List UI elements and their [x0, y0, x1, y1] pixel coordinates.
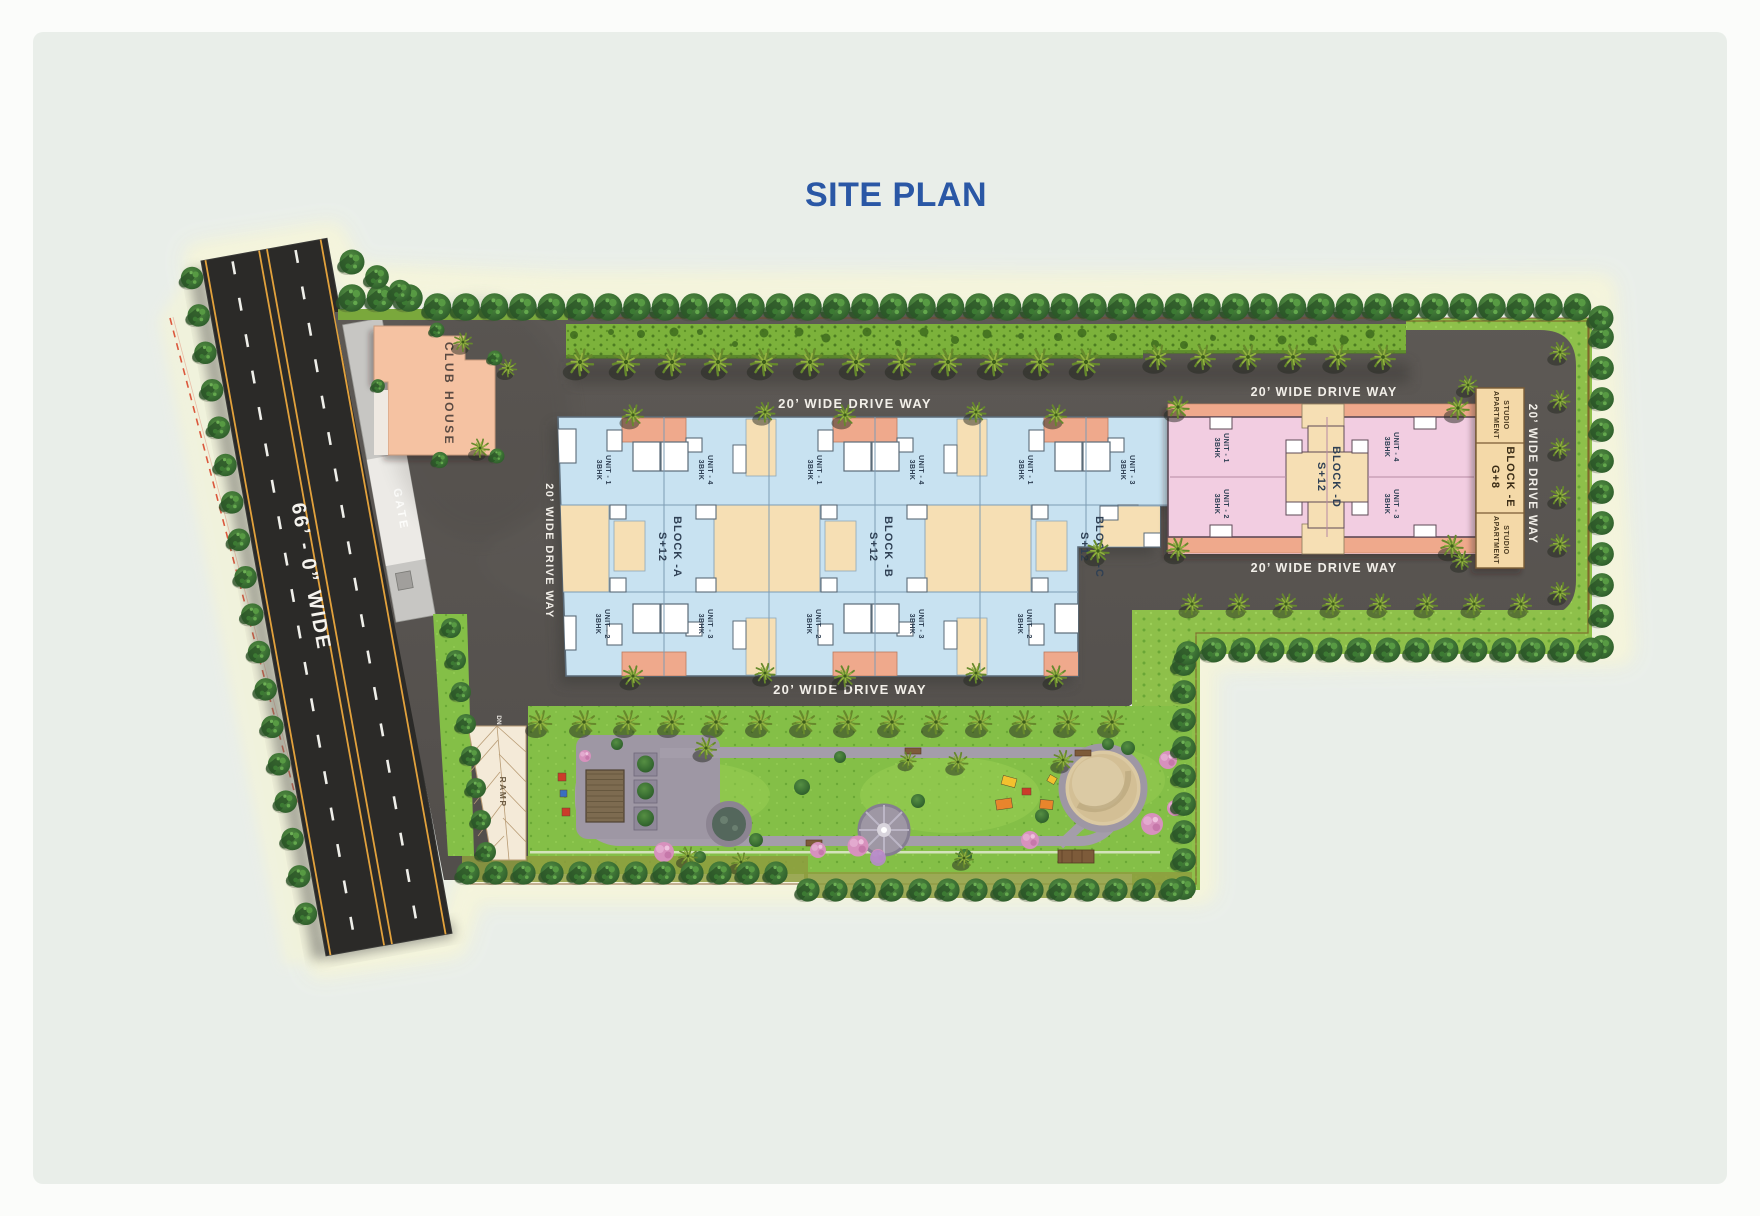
svg-text:APARTMENT: APARTMENT — [1492, 516, 1499, 564]
svg-text:UNIT - 4: UNIT - 4 — [706, 455, 713, 485]
svg-text:3BHK: 3BHK — [908, 614, 915, 635]
svg-text:3BHK: 3BHK — [1213, 438, 1220, 459]
svg-text:BLOCK -B: BLOCK -B — [882, 516, 894, 578]
svg-text:BLOCK -D: BLOCK -D — [1330, 446, 1342, 508]
svg-text:3BHK: 3BHK — [908, 460, 915, 481]
svg-text:SITE PLAN: SITE PLAN — [805, 176, 987, 214]
svg-text:3BHK: 3BHK — [594, 614, 601, 635]
svg-text:STUDIO: STUDIO — [1502, 525, 1509, 555]
svg-text:RAMP: RAMP — [498, 776, 508, 807]
svg-text:20’ WIDE DRIVE WAY: 20’ WIDE DRIVE WAY — [1251, 561, 1398, 575]
svg-text:CLUB HOUSE: CLUB HOUSE — [442, 342, 456, 446]
svg-text:20’ WIDE DRIVE WAY: 20’ WIDE DRIVE WAY — [1526, 404, 1538, 544]
svg-text:UNIT - 4: UNIT - 4 — [917, 455, 924, 485]
svg-text:UNIT - 1: UNIT - 1 — [604, 455, 611, 485]
svg-text:20’ WIDE DRIVE WAY: 20’ WIDE DRIVE WAY — [543, 483, 555, 618]
svg-text:DN: DN — [495, 715, 502, 725]
svg-text:UNIT - 2: UNIT - 2 — [1025, 609, 1032, 639]
svg-text:3BHK: 3BHK — [1383, 437, 1390, 458]
svg-text:UNIT - 2: UNIT - 2 — [603, 609, 610, 639]
svg-text:G+8: G+8 — [1489, 465, 1501, 489]
svg-text:STUDIO: STUDIO — [1502, 400, 1509, 430]
svg-text:APARTMENT: APARTMENT — [1492, 391, 1499, 439]
svg-text:UNIT - 3: UNIT - 3 — [1128, 455, 1135, 485]
svg-text:UNIT - 1: UNIT - 1 — [1026, 455, 1033, 485]
svg-text:UNIT - 2: UNIT - 2 — [1222, 489, 1229, 519]
svg-text:3BHK: 3BHK — [1119, 460, 1126, 481]
svg-text:UNIT - 3: UNIT - 3 — [1392, 489, 1399, 519]
svg-text:UNIT - 3: UNIT - 3 — [917, 609, 924, 639]
svg-text:UNIT - 3: UNIT - 3 — [706, 609, 713, 639]
svg-text:UNIT - 1: UNIT - 1 — [1222, 433, 1229, 463]
svg-text:20’ WIDE DRIVE WAY: 20’ WIDE DRIVE WAY — [1251, 385, 1398, 399]
svg-text:BLOCK -A: BLOCK -A — [671, 516, 683, 578]
svg-text:UNIT - 2: UNIT - 2 — [814, 609, 821, 639]
svg-text:20’ WIDE DRIVE WAY: 20’ WIDE DRIVE WAY — [778, 396, 932, 411]
svg-text:3BHK: 3BHK — [697, 614, 704, 635]
svg-text:UNIT - 1: UNIT - 1 — [815, 455, 822, 485]
svg-text:3BHK: 3BHK — [1383, 494, 1390, 515]
svg-text:S+12: S+12 — [867, 532, 879, 562]
svg-text:3BHK: 3BHK — [697, 460, 704, 481]
svg-text:3BHK: 3BHK — [806, 460, 813, 481]
svg-text:3BHK: 3BHK — [1213, 494, 1220, 515]
svg-text:3BHK: 3BHK — [805, 614, 812, 635]
svg-text:S+12: S+12 — [1315, 462, 1327, 492]
svg-text:3BHK: 3BHK — [1016, 614, 1023, 635]
svg-text:3BHK: 3BHK — [595, 460, 602, 481]
svg-text:3BHK: 3BHK — [1017, 460, 1024, 481]
svg-text:UNIT - 4: UNIT - 4 — [1392, 432, 1399, 462]
svg-text:S+12: S+12 — [656, 532, 668, 562]
svg-text:BLOCK -E: BLOCK -E — [1504, 446, 1516, 507]
